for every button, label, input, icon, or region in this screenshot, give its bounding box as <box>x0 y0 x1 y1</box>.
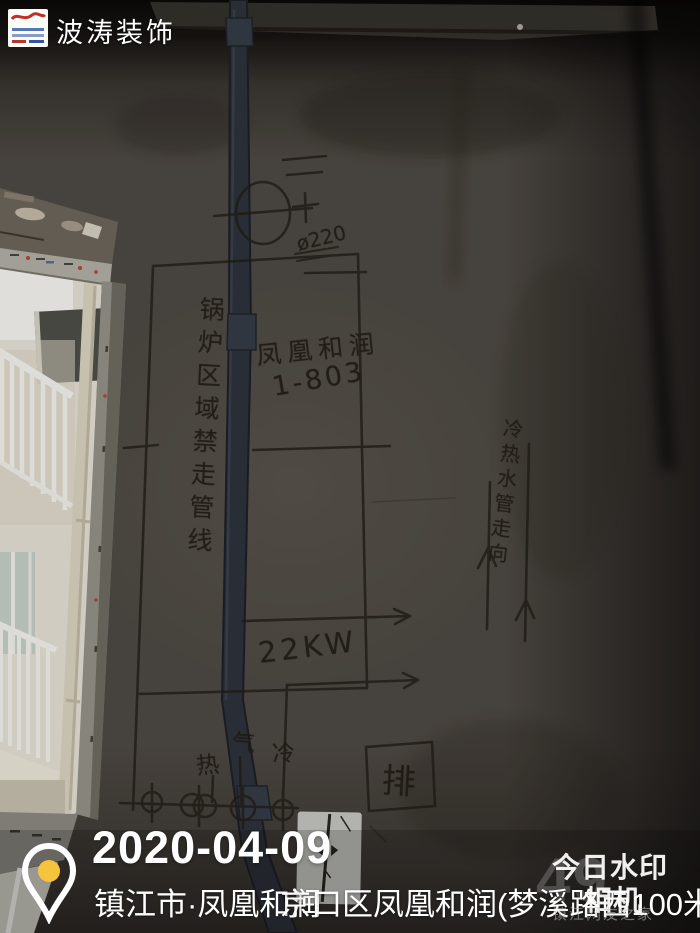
watermark-date: 2020-04-09 <box>92 822 332 874</box>
grain-texture <box>0 0 700 933</box>
location-pin-icon <box>20 842 78 924</box>
brand-logo-graphic <box>8 9 48 47</box>
brand-logo-badge <box>8 9 48 47</box>
brand-name: 波涛装饰 <box>56 11 176 50</box>
cold-label: 冷 <box>271 733 296 769</box>
photo-scene <box>0 0 700 933</box>
watermark-forum-name: 镇江网友之家 <box>552 903 654 924</box>
gas-label: 气 <box>231 723 256 759</box>
construction-photo: 锅炉区域禁走管线 凤凰和润 1-803 ø220 22KW 冷热水管走向 热 气… <box>0 0 700 933</box>
hot-label: 热 <box>194 745 220 781</box>
drain-label: 排 <box>381 753 418 804</box>
logo-calligraphy <box>12 14 45 19</box>
